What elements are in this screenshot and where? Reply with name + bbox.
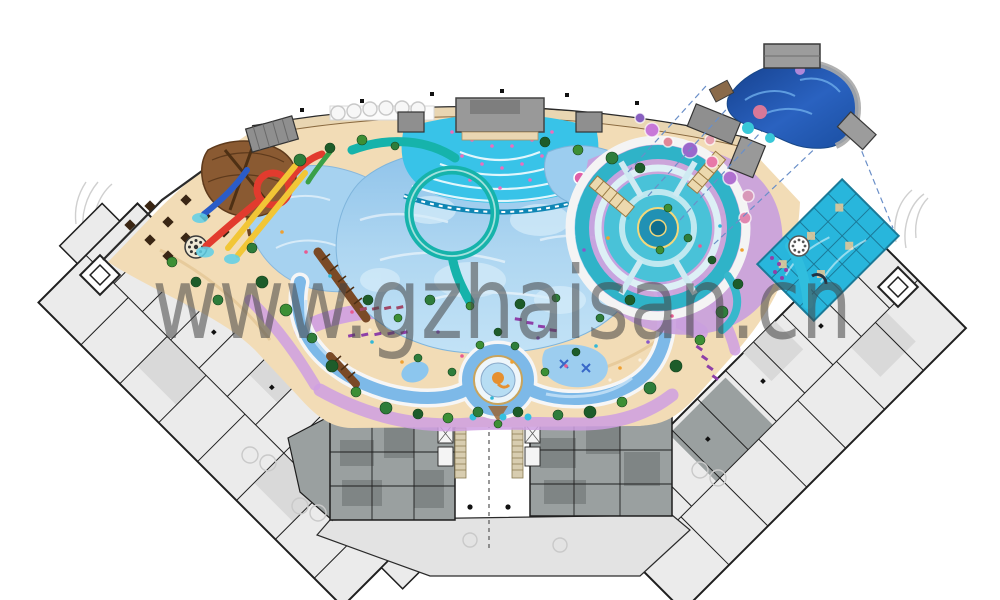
sketch-flourish-right [895,190,928,248]
waterpark-master-plan: www.gzhaisan.cn [0,0,1000,600]
watermark-text: www.gzhaisan.cn [152,245,852,362]
plan-canvas: www.gzhaisan.cn [0,0,1000,600]
stair-core-left [455,428,466,478]
stair-core-right [512,428,523,478]
